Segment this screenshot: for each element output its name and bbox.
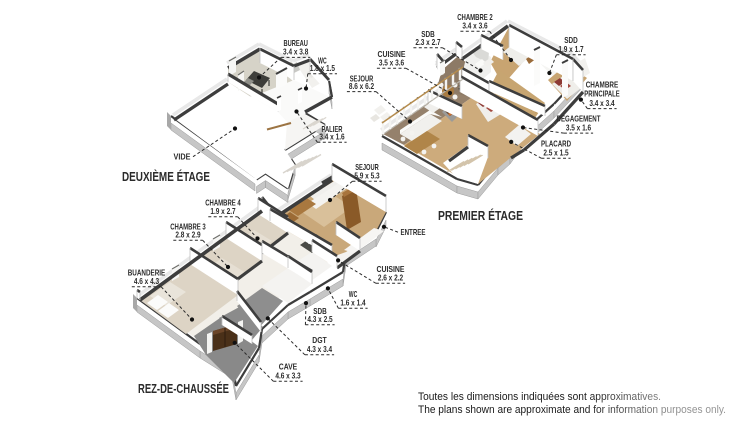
svg-text:3.4 x 3.8: 3.4 x 3.8 — [283, 48, 309, 57]
svg-text:2.5 x 1.5: 2.5 x 1.5 — [543, 149, 569, 158]
svg-text:3.5 x 3.6: 3.5 x 3.6 — [379, 59, 405, 68]
svg-text:1.9 x 1.7: 1.9 x 1.7 — [558, 45, 584, 54]
svg-text:DGT: DGT — [312, 336, 327, 345]
svg-text:CHAMBRE 4: CHAMBRE 4 — [205, 198, 241, 207]
svg-text:8.6 x 6.2: 8.6 x 6.2 — [349, 82, 375, 91]
svg-text:3.4 x 3.4: 3.4 x 3.4 — [589, 99, 615, 108]
svg-text:1.8 x 1.5: 1.8 x 1.5 — [310, 64, 336, 73]
svg-text:4.3 x 3.4: 4.3 x 3.4 — [307, 345, 333, 354]
svg-text:3.4 x 3.6: 3.4 x 3.6 — [462, 22, 488, 31]
svg-text:5.9 x 5.3: 5.9 x 5.3 — [354, 172, 380, 181]
svg-text:VIDE: VIDE — [174, 153, 191, 162]
svg-text:CHAMBRE: CHAMBRE — [586, 81, 619, 90]
svg-text:DEUXIÈME ÉTAGE: DEUXIÈME ÉTAGE — [122, 169, 210, 184]
svg-text:4.3 x 2.5: 4.3 x 2.5 — [307, 315, 333, 324]
svg-text:DEGAGEMENT: DEGAGEMENT — [557, 114, 601, 123]
svg-text:REZ-DE-CHAUSSÉE: REZ-DE-CHAUSSÉE — [138, 381, 229, 396]
svg-text:ENTREE: ENTREE — [401, 228, 426, 237]
svg-text:PLACARD: PLACARD — [541, 140, 571, 149]
svg-text:1.6 x 1.4: 1.6 x 1.4 — [340, 299, 366, 308]
svg-text:3.4 x 1.6: 3.4 x 1.6 — [319, 133, 345, 142]
svg-text:2.8 x 2.9: 2.8 x 2.9 — [175, 231, 201, 240]
svg-text:PRINCIPALE: PRINCIPALE — [584, 90, 620, 99]
svg-text:CAVE: CAVE — [279, 363, 298, 372]
svg-text:3.5 x 1.6: 3.5 x 1.6 — [566, 123, 592, 132]
svg-text:PREMIER ÉTAGE: PREMIER ÉTAGE — [438, 208, 523, 223]
svg-text:4.6 x 3.3: 4.6 x 3.3 — [275, 372, 301, 381]
svg-text:1.9 x 2.7: 1.9 x 2.7 — [210, 207, 236, 216]
svg-text:2.3 x 2.7: 2.3 x 2.7 — [415, 38, 441, 47]
svg-text:SDD: SDD — [564, 36, 578, 45]
svg-text:4.6 x 4.3: 4.6 x 4.3 — [134, 277, 160, 286]
svg-text:2.6 x 2.2: 2.6 x 2.2 — [378, 274, 404, 283]
